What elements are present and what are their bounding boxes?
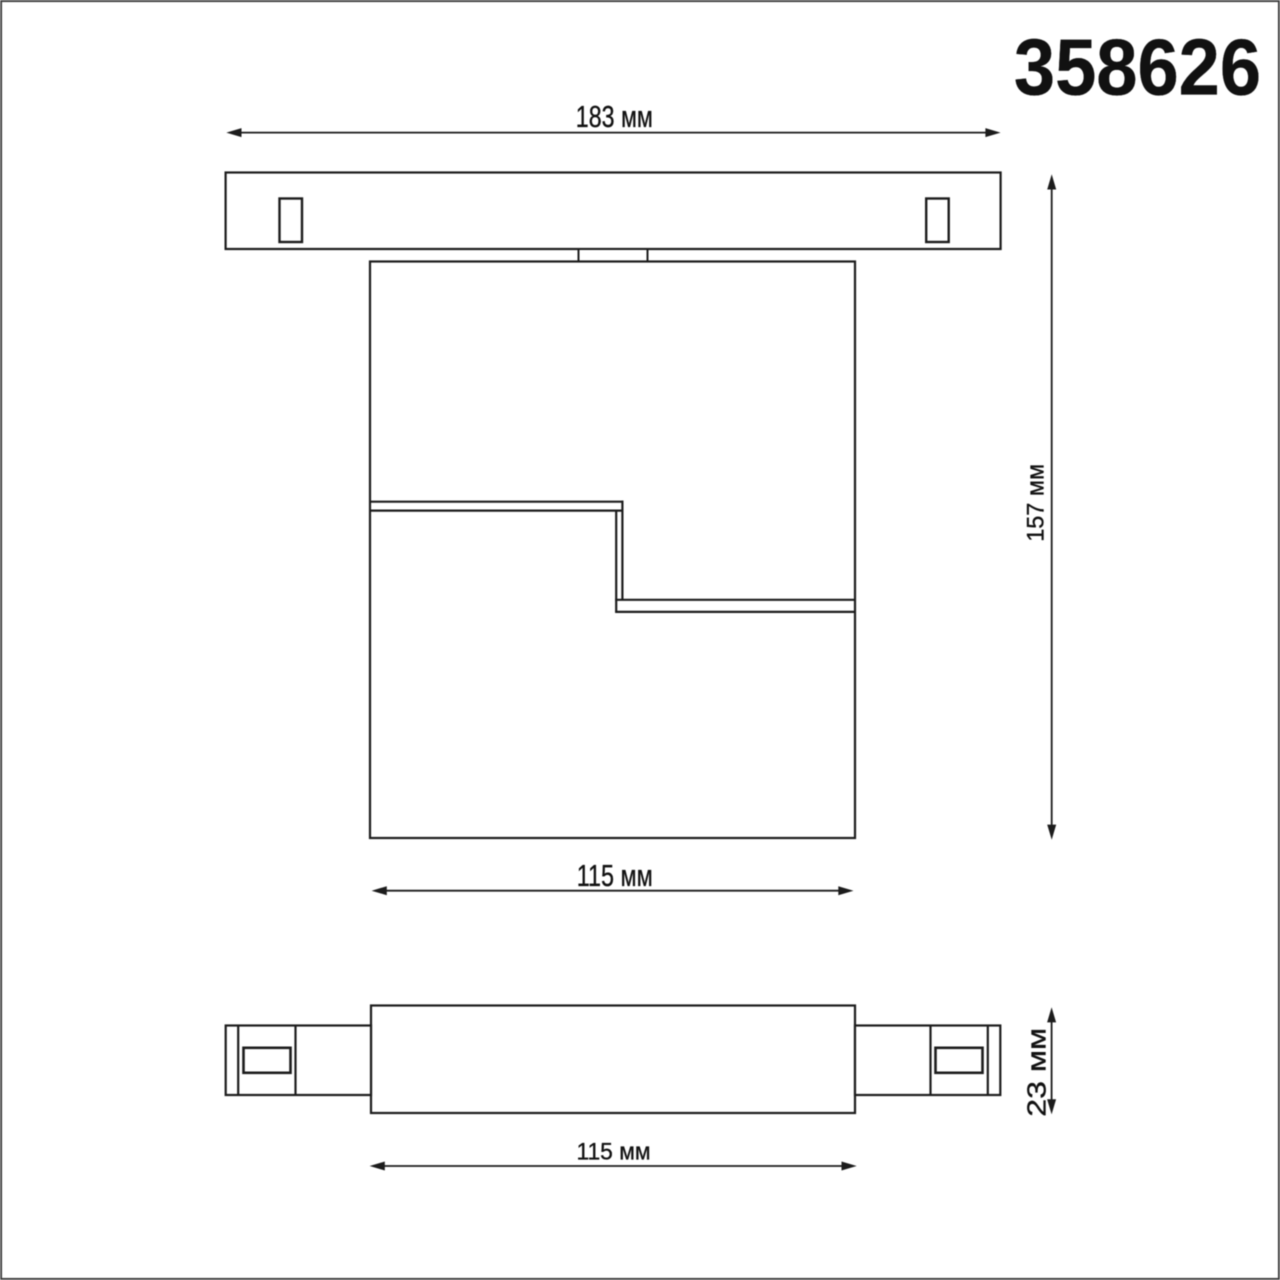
svg-text:115 мм: 115 мм xyxy=(577,858,653,893)
svg-text:183 мм: 183 мм xyxy=(576,99,653,134)
svg-text:23 мм: 23 мм xyxy=(1023,1028,1051,1117)
svg-text:157 мм: 157 мм xyxy=(1023,464,1049,542)
svg-text:115 мм: 115 мм xyxy=(577,1138,651,1165)
svg-text:358626: 358626 xyxy=(1014,23,1261,112)
